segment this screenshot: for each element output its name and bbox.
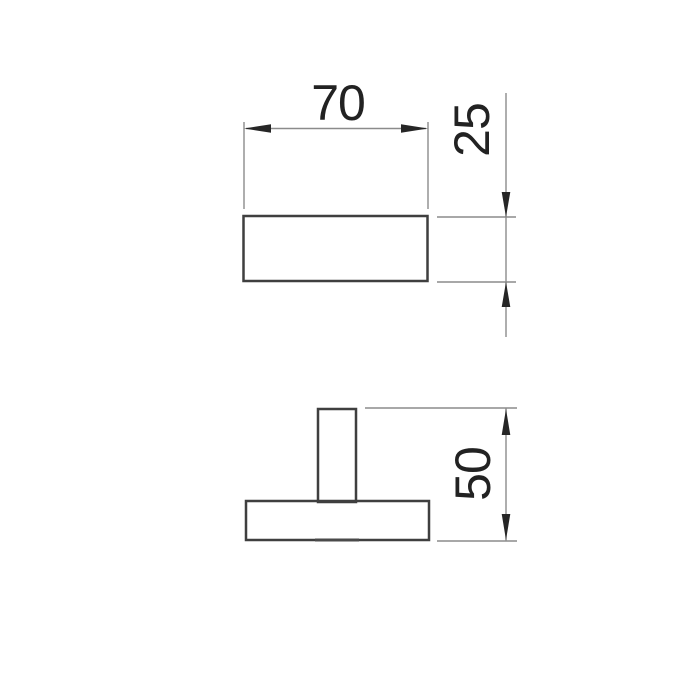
technical-drawing: 70 25 50 [0,0,700,700]
dimension-height: 50 [365,408,517,541]
dimension-width-label: 70 [311,75,365,131]
technical-drawing-canvas: 70 25 50 [0,0,700,700]
dimension-depth: 25 [437,93,516,337]
top-view [244,216,428,281]
dimension-width: 70 [244,75,428,209]
arrowhead-down-icon [502,514,511,540]
top-view-outline [244,216,428,281]
front-view [246,409,429,540]
arrowhead-right-icon [401,124,428,133]
arrowhead-up-icon [502,409,511,435]
front-view-base-outline [246,501,429,540]
arrowhead-down-icon [502,192,511,217]
dimension-height-label: 50 [445,447,501,501]
arrowhead-up-icon [502,282,511,307]
front-view-stem-outline [318,409,356,502]
arrowhead-left-icon [244,124,271,133]
dimension-depth-label: 25 [444,103,500,157]
